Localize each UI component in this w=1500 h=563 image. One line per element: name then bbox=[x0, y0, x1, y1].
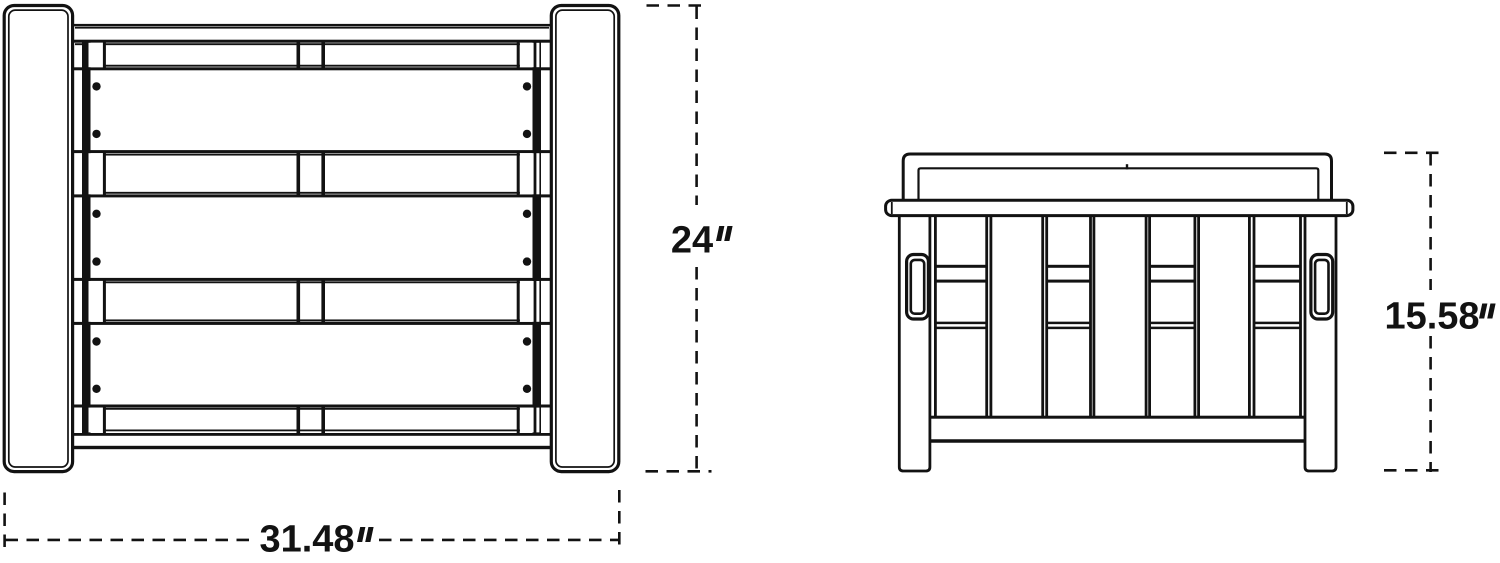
svg-text:24: 24 bbox=[671, 219, 713, 261]
svg-text:31.48: 31.48 bbox=[259, 518, 354, 558]
svg-text:15.58: 15.58 bbox=[1384, 295, 1479, 337]
